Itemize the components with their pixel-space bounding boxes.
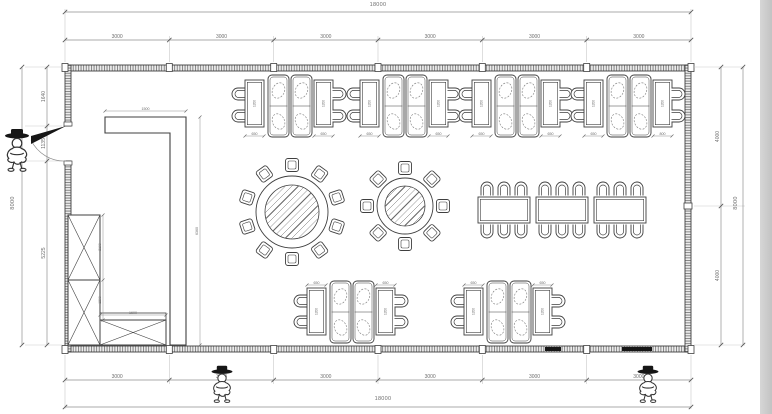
chair (597, 182, 609, 196)
chair (459, 88, 473, 100)
svg-text:1200: 1200 (549, 100, 553, 107)
svg-text:1200: 1200 (661, 100, 665, 107)
chair (672, 110, 686, 122)
chair (573, 182, 585, 196)
chair (556, 225, 568, 239)
dim-top-overall: 18000 (338, 2, 418, 8)
svg-text:1200: 1200 (315, 308, 319, 315)
chair (423, 170, 441, 188)
chair (255, 165, 273, 183)
person-figure (638, 366, 659, 403)
person-figure (212, 366, 233, 403)
chair (347, 88, 361, 100)
booth-bench (487, 281, 508, 343)
column-marker (62, 346, 68, 354)
chair (395, 295, 409, 307)
booth-bench (607, 75, 628, 137)
banquet-row (478, 182, 646, 238)
svg-text:5225: 5225 (41, 247, 47, 258)
svg-text:6360: 6360 (195, 227, 199, 235)
svg-text:800: 800 (660, 132, 666, 136)
booth-table: 1200 (541, 80, 560, 127)
booth-table: 1200 (360, 80, 379, 127)
chair (498, 225, 510, 239)
svg-text:650: 650 (436, 132, 442, 136)
column-marker (62, 64, 68, 72)
booth-group: 12001200650650 (232, 75, 346, 138)
chair (395, 316, 409, 328)
svg-text:3000: 3000 (216, 34, 227, 40)
svg-text:2100: 2100 (98, 243, 102, 251)
chair (286, 253, 299, 266)
svg-text:650: 650 (479, 132, 485, 136)
svg-text:1200: 1200 (253, 100, 257, 107)
svg-text:650: 650 (540, 281, 546, 285)
column-marker (584, 346, 590, 354)
svg-text:1600: 1600 (129, 311, 137, 315)
booth-table: 1200 (376, 288, 395, 335)
svg-text:3000: 3000 (320, 34, 331, 40)
chair (597, 225, 609, 239)
svg-text:3000: 3000 (529, 374, 540, 380)
chair (573, 225, 585, 239)
booth-bench (383, 75, 404, 137)
wall-left-upper (65, 65, 71, 126)
booth-table: 1200 (307, 288, 326, 335)
svg-text:1200: 1200 (98, 296, 102, 304)
booth-table: 1200 (429, 80, 448, 127)
booth-table: 1200 (314, 80, 333, 127)
svg-text:1200: 1200 (322, 100, 326, 107)
column-marker (375, 346, 381, 354)
booth-bench (291, 75, 312, 137)
svg-text:650: 650 (383, 281, 389, 285)
booth-table: 1200 (472, 80, 491, 127)
entrance-door (31, 126, 66, 161)
person-figure (5, 129, 29, 171)
chair (672, 88, 686, 100)
chair (361, 200, 374, 213)
svg-text:1500: 1500 (142, 107, 150, 111)
column-marker (479, 64, 485, 72)
svg-text:1640: 1640 (41, 91, 47, 102)
svg-text:650: 650 (252, 132, 258, 136)
svg-text:3000: 3000 (112, 34, 123, 40)
floor-plan-drawing: 3000300030003000300030003000300030003000… (0, 0, 772, 414)
booth-table: 1200 (584, 80, 603, 127)
svg-text:4000: 4000 (715, 270, 721, 281)
booth-bench (630, 75, 651, 137)
round-table-group (239, 159, 345, 266)
chair (571, 110, 585, 122)
cabinet (68, 215, 100, 280)
svg-text:3000: 3000 (425, 34, 436, 40)
chair (614, 225, 626, 239)
svg-text:4000: 4000 (715, 131, 721, 142)
cabinet (100, 313, 166, 345)
chair (333, 110, 347, 122)
door-leaf (31, 126, 66, 144)
svg-text:650: 650 (321, 132, 327, 136)
svg-text:1200: 1200 (472, 308, 476, 315)
chair (451, 316, 465, 328)
booth-group: 12001200650800 (571, 75, 685, 138)
svg-text:1200: 1200 (541, 308, 545, 315)
banquet-table (536, 197, 588, 223)
booth-table: 1200 (245, 80, 264, 127)
chair (481, 182, 493, 196)
chair (239, 189, 255, 205)
column-marker (688, 64, 694, 72)
chair (232, 110, 246, 122)
dim-bottom-overall: 18000 (343, 396, 423, 402)
floor-plan-page: 3000300030003000300030003000300030003000… (0, 0, 772, 414)
banquet-table (478, 197, 530, 223)
chair (329, 218, 345, 234)
booth-group: 12001200650650 (459, 75, 573, 138)
chair (614, 182, 626, 196)
chair (333, 88, 347, 100)
svg-text:650: 650 (314, 281, 320, 285)
column-marker (271, 64, 277, 72)
chair (631, 225, 643, 239)
cabinet (68, 280, 100, 345)
chair (369, 224, 387, 242)
chair (571, 88, 585, 100)
booth-bench (268, 75, 289, 137)
banquet-table (594, 197, 646, 223)
service-area: 15006360210012001600 (68, 107, 202, 347)
chair (631, 182, 643, 196)
chair (515, 225, 527, 239)
svg-text:1200: 1200 (592, 100, 596, 107)
svg-text:3000: 3000 (529, 34, 540, 40)
chair (232, 88, 246, 100)
svg-text:1135: 1135 (41, 138, 47, 149)
booth-bench (510, 281, 531, 343)
chair (399, 162, 412, 175)
chair (552, 295, 566, 307)
booth-table: 1200 (533, 288, 552, 335)
chair (423, 224, 441, 242)
door-jamb (64, 161, 72, 165)
column-marker (166, 346, 172, 354)
svg-text:1200: 1200 (480, 100, 484, 107)
booth-table: 1200 (653, 80, 672, 127)
booth-bench (406, 75, 427, 137)
chair (286, 159, 299, 172)
chair (294, 295, 308, 307)
booth-table: 1200 (464, 288, 483, 335)
chair (369, 170, 387, 188)
furniture: 1200120065065012001200650650120012006506… (232, 75, 685, 343)
chair (552, 316, 566, 328)
door-jamb (64, 122, 72, 126)
chair (515, 182, 527, 196)
svg-text:650: 650 (548, 132, 554, 136)
booth-bench (353, 281, 374, 343)
column-marker (271, 346, 277, 354)
booth-bench (518, 75, 539, 137)
booth-bench (330, 281, 351, 343)
dim-right-overall: 8000 (733, 188, 741, 218)
chair (255, 241, 273, 259)
column-marker (684, 203, 692, 209)
wall-solid-segment (622, 347, 652, 351)
column-marker (584, 64, 590, 72)
svg-text:3000: 3000 (320, 374, 331, 380)
counter (105, 117, 186, 345)
chair (399, 238, 412, 251)
dim-left-overall: 8000 (10, 188, 18, 218)
chair (437, 200, 450, 213)
booth-bench (495, 75, 516, 137)
column-marker (166, 64, 172, 72)
booth-group: 12001200650650 (294, 281, 408, 343)
svg-text:1200: 1200 (368, 100, 372, 107)
svg-text:3000: 3000 (425, 374, 436, 380)
chair (451, 295, 465, 307)
scan-edge-artifact (760, 0, 772, 414)
wall-solid-segment (545, 347, 561, 351)
svg-text:3000: 3000 (633, 34, 644, 40)
svg-text:1200: 1200 (384, 308, 388, 315)
chair (311, 165, 329, 183)
svg-text:1200: 1200 (437, 100, 441, 107)
chair (311, 241, 329, 259)
svg-text:3000: 3000 (112, 374, 123, 380)
chair (539, 182, 551, 196)
chair (294, 316, 308, 328)
column-marker (688, 346, 694, 354)
round-table-group (356, 157, 454, 255)
column-marker (479, 346, 485, 354)
chair (329, 189, 345, 205)
chair (498, 182, 510, 196)
svg-text:3000: 3000 (633, 374, 644, 380)
svg-text:650: 650 (591, 132, 597, 136)
chair (539, 225, 551, 239)
chair (239, 218, 255, 234)
column-marker (375, 64, 381, 72)
svg-text:650: 650 (471, 281, 477, 285)
chair (459, 110, 473, 122)
booth-group: 12001200650650 (347, 75, 461, 138)
chair (481, 225, 493, 239)
chair (347, 110, 361, 122)
chair (556, 182, 568, 196)
booth-group: 12001200650650 (451, 281, 565, 343)
svg-text:650: 650 (367, 132, 373, 136)
